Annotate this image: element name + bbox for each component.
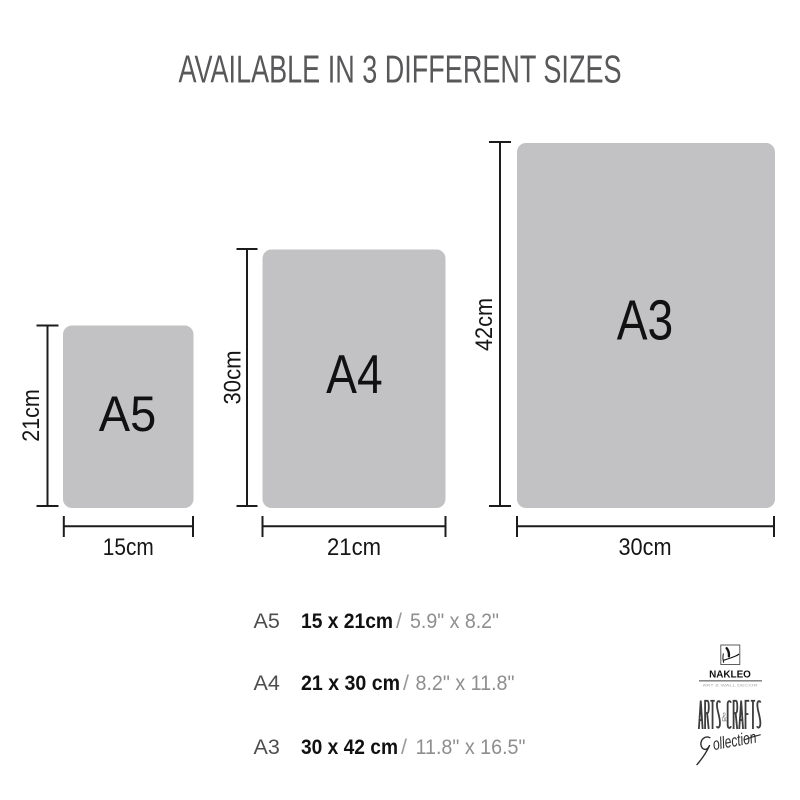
- svg-text:A3: A3: [617, 289, 674, 353]
- svg-text:21cm: 21cm: [18, 389, 45, 442]
- svg-text:A4: A4: [326, 343, 383, 405]
- svg-text:ART & WALL DECOR: ART & WALL DECOR: [702, 682, 757, 687]
- svg-text:42cm: 42cm: [471, 298, 498, 351]
- svg-text:AVAILABLE IN 3 DIFFERENT SIZES: AVAILABLE IN 3 DIFFERENT SIZES: [179, 49, 622, 92]
- svg-text:NAKLEO: NAKLEO: [709, 668, 751, 680]
- svg-text:21cm: 21cm: [327, 534, 381, 561]
- svg-text:15cm: 15cm: [103, 534, 154, 561]
- svg-text:30cm: 30cm: [220, 351, 247, 405]
- svg-text:&: &: [722, 710, 727, 725]
- svg-text:30cm: 30cm: [619, 534, 672, 561]
- svg-text:A5: A5: [99, 386, 157, 442]
